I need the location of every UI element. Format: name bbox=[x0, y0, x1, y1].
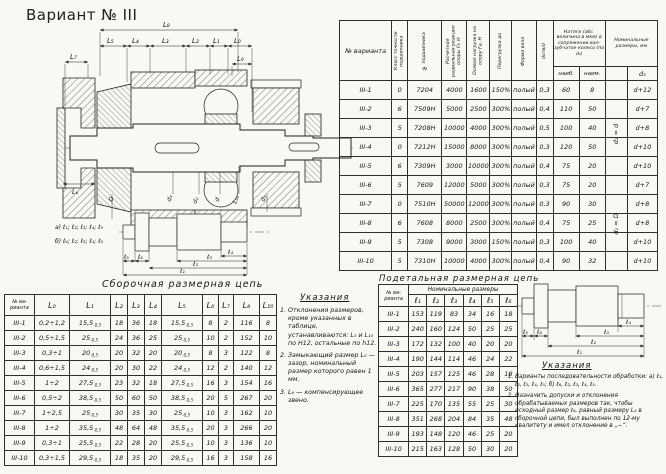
table-cell: III-3 bbox=[5, 346, 35, 361]
table-cell: d+8 bbox=[627, 214, 657, 233]
table-cell: III-4 bbox=[379, 352, 409, 367]
table-cell: 40 bbox=[579, 233, 605, 252]
table-cell: 7204 bbox=[408, 81, 442, 100]
table-cell: 50 bbox=[463, 442, 481, 457]
table-cell: 25 bbox=[481, 322, 499, 337]
table-row: III-100,3÷1,529,5-0,518352029,5-0,516315… bbox=[5, 451, 277, 466]
shaft-step bbox=[534, 284, 548, 328]
machining-sequence-b: б) ℓ₆; ℓ₂; ℓ₃; ℓ₄; ℓ₅ bbox=[55, 238, 104, 245]
table-cell: 217 bbox=[445, 382, 463, 397]
table-row: III-51÷227,5-0,523321827,5-0,516315416 bbox=[5, 376, 277, 391]
subheader-blank bbox=[605, 67, 627, 81]
gear-body-bottom bbox=[253, 172, 299, 208]
table-cell: 0,3 bbox=[536, 138, 553, 157]
table-cell: 140 bbox=[234, 361, 260, 376]
table-cell: 50 bbox=[579, 138, 605, 157]
table-cell: 5 bbox=[392, 176, 408, 195]
table-cell: 30 bbox=[481, 442, 499, 457]
table-cell: 55 bbox=[463, 397, 481, 412]
table-cell: полый bbox=[512, 195, 536, 214]
table-cell: 20-0,5 bbox=[162, 346, 203, 361]
table-cell: 300% bbox=[490, 100, 512, 119]
table-cell: d+10 bbox=[627, 252, 657, 271]
gear-rim-top bbox=[251, 80, 301, 88]
col-header-L2: L₂ bbox=[111, 295, 128, 316]
table-row: III-1057310Н100004000300%полый0,49032d+1… bbox=[340, 252, 658, 271]
table-row: III-9193148120462520 bbox=[379, 427, 518, 442]
table-cell: 100 bbox=[553, 119, 579, 138]
table-cell: 50 bbox=[145, 391, 162, 406]
table-cell: 12000 bbox=[442, 176, 467, 195]
col-header-accuracy-class: Класс точности подшипника bbox=[392, 21, 408, 81]
shaft-step bbox=[522, 298, 534, 314]
table-cell: 120 bbox=[553, 138, 579, 157]
table-cell: 128 bbox=[445, 442, 463, 457]
table-cell: 3 bbox=[219, 376, 234, 391]
table-cell: 300% bbox=[490, 119, 512, 138]
table-cell: 0,4 bbox=[536, 252, 553, 271]
table-cell: 300% bbox=[490, 214, 512, 233]
table-cell: 150% bbox=[490, 81, 512, 100]
table-cell: 15,5-0,5 bbox=[70, 316, 111, 331]
table-cell: 8 bbox=[579, 81, 605, 100]
right-ring-bottom bbox=[305, 160, 321, 182]
dim-label: L₇ bbox=[70, 53, 77, 61]
table-cell: 0,3÷1 bbox=[35, 436, 70, 451]
table-cell: 18 bbox=[145, 376, 162, 391]
gear-body-top bbox=[253, 88, 299, 124]
dim-label: ℓ₂ bbox=[590, 339, 596, 346]
table-cell: 27,5-0,5 bbox=[162, 376, 203, 391]
table-cell: 150% bbox=[490, 233, 512, 252]
table-cell: 16 bbox=[203, 376, 219, 391]
table-cell: 300% bbox=[490, 157, 512, 176]
table-cell bbox=[605, 157, 627, 176]
table-cell: 10 bbox=[203, 436, 219, 451]
table-cell: 30 bbox=[579, 195, 605, 214]
table-cell: III-7 bbox=[5, 406, 35, 421]
table-cell: 90 bbox=[553, 195, 579, 214]
table-cell: 20 bbox=[145, 451, 162, 466]
dim-label: L₈ bbox=[163, 21, 170, 29]
table-cell: 8000 bbox=[442, 214, 467, 233]
table-cell: 10 bbox=[260, 436, 277, 451]
table-cell: 20 bbox=[260, 391, 277, 406]
table-cell: 172 bbox=[409, 337, 427, 352]
table-cell: 136 bbox=[234, 436, 260, 451]
table-row: III-86760880002500300%полый0,47525d+8 bbox=[340, 214, 658, 233]
table-cell: III-9 bbox=[379, 427, 409, 442]
ball-bearing-outer-top bbox=[195, 70, 247, 86]
table-cell: 100 bbox=[553, 233, 579, 252]
table-cell: 64 bbox=[128, 421, 145, 436]
table-cell: 0,2÷1,2 bbox=[35, 316, 70, 331]
table-row: III-95730890003000150%полый0,310040d+10 bbox=[340, 233, 658, 252]
table-cell: III-10 bbox=[340, 252, 392, 271]
table-cell: 20 bbox=[499, 442, 517, 457]
table-row: III-7225170135552530 bbox=[379, 397, 518, 412]
table-cell: 3000 bbox=[442, 157, 467, 176]
table-row: III-407212Н150008000300%полый0,312050d+1… bbox=[340, 138, 658, 157]
table-cell: полый bbox=[512, 100, 536, 119]
notes-left-title: Указания bbox=[300, 293, 379, 303]
table-cell: 20 bbox=[499, 337, 517, 352]
table-cell: 22 bbox=[111, 436, 128, 451]
dim-label: ℓ₂ bbox=[192, 261, 198, 268]
shaft-step bbox=[221, 222, 247, 242]
table-cell: 122 bbox=[234, 346, 260, 361]
table-cell: 268 bbox=[427, 412, 445, 427]
table-cell: 84 bbox=[463, 412, 481, 427]
table-cell: 16 bbox=[481, 307, 499, 322]
table-cell: 0,5÷1,5 bbox=[35, 331, 70, 346]
table-cell: d+7 bbox=[627, 176, 657, 195]
table-cell: 16 bbox=[260, 451, 277, 466]
dim-label: ℓ₅ bbox=[123, 254, 129, 261]
table-cell: 2500 bbox=[467, 100, 490, 119]
table-cell: 20 bbox=[145, 436, 162, 451]
note-item: Варианты последовательности обработки: а… bbox=[515, 374, 664, 389]
table-row: III-71÷2,525-0,530353025-0,510316210 bbox=[5, 406, 277, 421]
table-cell: 29,5-0,5 bbox=[70, 451, 111, 466]
table-cell bbox=[605, 100, 627, 119]
col-header-shaft-form: Форма вала bbox=[512, 21, 536, 81]
dim-label: ℓ₆ bbox=[536, 329, 542, 336]
table-cell: 277 bbox=[427, 382, 445, 397]
table-row: III-4190144114462422 bbox=[379, 352, 518, 367]
table-cell: 152 bbox=[234, 331, 260, 346]
table-cell: 22 bbox=[145, 361, 162, 376]
dim-label: ℓ₁ bbox=[179, 268, 185, 275]
table-cell: 40 bbox=[579, 119, 605, 138]
table-cell: 0 bbox=[392, 138, 408, 157]
col-header-variant: № варианта bbox=[340, 21, 392, 81]
table-cell: 365 bbox=[409, 382, 427, 397]
table-cell: 32 bbox=[128, 376, 145, 391]
table-cell: 215 bbox=[409, 442, 427, 457]
dim-label: L₃ bbox=[162, 37, 169, 45]
table-cell: III-5 bbox=[5, 376, 35, 391]
table-row: III-357208Н100004000300%полый0,510040d+8 bbox=[340, 119, 658, 138]
table-cell: III-4 bbox=[340, 138, 392, 157]
table-cell: 4000 bbox=[467, 119, 490, 138]
bearing-assembly-drawing: L₈ L₅ L₄ L₃ L₂ L₁ L₀ L₇ L₉ L₆ D d₃ d₂ d … bbox=[55, 16, 355, 278]
table-cell: 203 bbox=[409, 367, 427, 382]
table-cell: 35,5-0,5 bbox=[70, 421, 111, 436]
table-cell: 20 bbox=[111, 346, 128, 361]
table-cell: 351 bbox=[409, 412, 427, 427]
col-header-radial-reaction: Расчетная радиальная реакция опоры Fr, Н bbox=[442, 21, 467, 81]
table-cell: 25 bbox=[499, 322, 517, 337]
table-cell: III-8 bbox=[5, 421, 35, 436]
table-row: III-657609120005000300%полый0,37520d+7 bbox=[340, 176, 658, 195]
table-cell: 60 bbox=[128, 391, 145, 406]
table-cell: 9000 bbox=[442, 233, 467, 252]
table-cell: III-3 bbox=[340, 119, 392, 138]
table-cell: d+10 bbox=[627, 233, 657, 252]
table-cell: 27,5-0,5 bbox=[70, 376, 111, 391]
table-cell: III-2 bbox=[340, 100, 392, 119]
table-cell: 8 bbox=[203, 346, 219, 361]
table-cell: III-3 bbox=[379, 337, 409, 352]
table-cell: 12000 bbox=[467, 195, 490, 214]
table-cell: 18 bbox=[111, 316, 128, 331]
table-cell: 0,5÷2 bbox=[35, 391, 70, 406]
table-cell: III-8 bbox=[340, 214, 392, 233]
col-header-el1: ℓ₁ bbox=[409, 295, 427, 307]
table-row: III-3172132100402020 bbox=[379, 337, 518, 352]
table-cell: 3 bbox=[219, 421, 234, 436]
table-cell: 3 bbox=[219, 451, 234, 466]
table-cell: 0,6÷1,5 bbox=[35, 361, 70, 376]
col-header-L10: L₁₀ bbox=[260, 295, 277, 316]
table-cell: 25 bbox=[481, 427, 499, 442]
table-cell: 162 bbox=[234, 406, 260, 421]
table-cell: 20 bbox=[579, 176, 605, 195]
table-cell: 35 bbox=[128, 451, 145, 466]
table-cell: 30 bbox=[145, 406, 162, 421]
note-d1-equals-D: d₁ = D bbox=[612, 209, 620, 239]
table-cell: 30 bbox=[128, 361, 145, 376]
table-cell: 50 bbox=[111, 391, 128, 406]
table-cell: 18 bbox=[499, 307, 517, 322]
col-header-L5: L₅ bbox=[162, 295, 203, 316]
table-cell: 114 bbox=[445, 352, 463, 367]
dim-label: d₃ bbox=[165, 194, 174, 203]
notes-left: Указания Отклонения размеров, кроме указ… bbox=[279, 293, 379, 409]
table-cell: 90 bbox=[463, 382, 481, 397]
table-cell: 266 bbox=[234, 421, 260, 436]
table-cell: 20 bbox=[579, 157, 605, 176]
table-cell: 5 bbox=[219, 391, 234, 406]
housing-top bbox=[131, 72, 195, 88]
table-cell: III-2 bbox=[379, 322, 409, 337]
table-cell: 20 bbox=[481, 337, 499, 352]
left-flange bbox=[57, 108, 65, 188]
table-cell: 30 bbox=[111, 406, 128, 421]
table-cell: 163 bbox=[427, 442, 445, 457]
table-cell: 190 bbox=[409, 352, 427, 367]
table-cell: 0,5 bbox=[536, 119, 553, 138]
table-cell: 25 bbox=[481, 397, 499, 412]
table-cell: 24-0,5 bbox=[162, 361, 203, 376]
table-cell: 7308 bbox=[408, 233, 442, 252]
col-header-variant: № ва-рианта bbox=[5, 295, 35, 316]
assembly-chain-table: № ва-рианта L₀ L₁ L₂ L₃ L₄ L₅ L₆ L₇ L₈ L… bbox=[4, 294, 277, 466]
shaft-step bbox=[123, 225, 135, 239]
left-cap-bottom bbox=[63, 168, 95, 218]
table-cell: 157 bbox=[427, 367, 445, 382]
dim-label: ℓ₃ bbox=[206, 254, 212, 261]
table-cell: 300% bbox=[490, 176, 512, 195]
table-cell: 18 bbox=[111, 451, 128, 466]
table-cell: 34 bbox=[463, 307, 481, 322]
table-cell: 38,5-0,5 bbox=[162, 391, 203, 406]
col-header-L6: L₆ bbox=[203, 295, 219, 316]
table-cell: полый bbox=[512, 119, 536, 138]
table-cell: 4000 bbox=[467, 252, 490, 271]
table-cell: полый bbox=[512, 252, 536, 271]
table-cell: 10 bbox=[203, 406, 219, 421]
table-cell: 36 bbox=[128, 331, 145, 346]
table-cell: 35 bbox=[481, 412, 499, 427]
table-cell: d+7 bbox=[627, 100, 657, 119]
note-item: Отклонения размеров, кроме указанных в т… bbox=[288, 307, 379, 348]
table-cell: 90 bbox=[553, 252, 579, 271]
note-d2-equals-d: d₂ = d bbox=[612, 119, 620, 149]
table-cell: 0,4 bbox=[536, 157, 553, 176]
col-header-L8: L₈ bbox=[234, 295, 260, 316]
table-cell: 16 bbox=[203, 451, 219, 466]
shaft-step bbox=[548, 290, 576, 322]
table-cell: 154 bbox=[234, 376, 260, 391]
table-cell: полый bbox=[512, 233, 536, 252]
table-cell: 2 bbox=[219, 316, 234, 331]
table-cell: 6 bbox=[392, 157, 408, 176]
table-cell: 25-0,5 bbox=[70, 331, 111, 346]
notes-right-title: Указания bbox=[542, 361, 664, 371]
table-cell: 5000 bbox=[467, 176, 490, 195]
table-cell: 5 bbox=[392, 233, 408, 252]
table-cell: 10 bbox=[260, 406, 277, 421]
table-cell: 25-0,5 bbox=[70, 406, 111, 421]
table-cell: 8 bbox=[203, 316, 219, 331]
table-cell: 7309Н bbox=[408, 157, 442, 176]
col-header-L7: L₇ bbox=[219, 295, 234, 316]
table-row: III-5203157125462818 bbox=[379, 367, 518, 382]
table-cell: 10 bbox=[203, 331, 219, 346]
table-cell: 0,3÷1 bbox=[35, 346, 70, 361]
table-cell: III-7 bbox=[379, 397, 409, 412]
table-cell: 20 bbox=[203, 391, 219, 406]
table-row: III-267509Н50002500300%полый0,411050d+7 bbox=[340, 100, 658, 119]
shaft-step bbox=[576, 286, 618, 326]
table-cell: 119 bbox=[427, 307, 445, 322]
table-cell: 300% bbox=[490, 138, 512, 157]
notes-right: Указания Варианты последовательности обр… bbox=[506, 361, 664, 435]
machining-sequence-a: а) ℓ₁; ℓ₂; ℓ₃; ℓ₄; ℓ₅ bbox=[55, 224, 104, 231]
note-item: L₉ — компенсирующее звено. bbox=[288, 389, 379, 405]
table-cell: 193 bbox=[409, 427, 427, 442]
subheader-max: наиб. bbox=[553, 67, 579, 81]
table-cell: 125 bbox=[445, 367, 463, 382]
dim-label: ℓ₄ bbox=[227, 249, 233, 256]
col-header-bearing-no: № подшипника bbox=[408, 21, 442, 81]
table-cell: 25 bbox=[145, 331, 162, 346]
table-cell: 5000 bbox=[442, 100, 467, 119]
table-cell: 124 bbox=[445, 322, 463, 337]
left-bearing-bottom bbox=[97, 168, 131, 212]
table-cell: 3 bbox=[219, 346, 234, 361]
table-cell: 38,5-0,5 bbox=[70, 391, 111, 406]
table-cell: 240 bbox=[409, 322, 427, 337]
scanned-sheet: Вариант № III bbox=[0, 0, 666, 474]
table-cell: 7609 bbox=[408, 176, 442, 195]
table-cell: 2 bbox=[219, 331, 234, 346]
table-cell: 46 bbox=[463, 427, 481, 442]
inner-race-top bbox=[205, 114, 237, 124]
table-row: III-10,2÷1,215,5-0,518361815,5-0,5821168 bbox=[5, 316, 277, 331]
table-cell: 10000 bbox=[442, 252, 467, 271]
table-cell: 1÷2 bbox=[35, 421, 70, 436]
table-cell: 50000 bbox=[442, 195, 467, 214]
table-cell: 7608 bbox=[408, 214, 442, 233]
dim-label: ℓ₁ bbox=[576, 349, 582, 356]
table-cell: d+12 bbox=[627, 81, 657, 100]
col-header-L3: L₃ bbox=[128, 295, 145, 316]
keyway-right bbox=[289, 143, 319, 151]
table-cell: 35 bbox=[128, 406, 145, 421]
table-cell: III-8 bbox=[379, 412, 409, 427]
table-cell: 0,3 bbox=[536, 176, 553, 195]
table-cell: 0,4 bbox=[536, 100, 553, 119]
table-cell: 75 bbox=[553, 157, 579, 176]
table-row: III-707510Н5000012000300%полый0,39030d+8 bbox=[340, 195, 658, 214]
dim-label: L₅ bbox=[107, 37, 114, 45]
table-cell: 25 bbox=[579, 214, 605, 233]
table-cell: 15,5-0,5 bbox=[162, 316, 203, 331]
table-cell: 75 bbox=[553, 176, 579, 195]
table-cell: 25-0,5 bbox=[162, 331, 203, 346]
table-cell: 20 bbox=[111, 361, 128, 376]
keyway-left bbox=[155, 143, 199, 153]
col-header-dotv-d: dотв/d bbox=[536, 21, 553, 81]
table-cell: 60 bbox=[553, 81, 579, 100]
table-cell: 36 bbox=[128, 316, 145, 331]
col-header-el6: ℓ₆ bbox=[499, 295, 517, 307]
table-cell: 158 bbox=[234, 451, 260, 466]
table-row: III-115311983341618 bbox=[379, 307, 518, 322]
table-cell: 8000 bbox=[467, 138, 490, 157]
table-cell: 83 bbox=[445, 307, 463, 322]
col-header-variant: № ва-рианта bbox=[379, 285, 409, 307]
table-cell: 7509Н bbox=[408, 100, 442, 119]
table-cell: 2500 bbox=[467, 214, 490, 233]
table-cell: 100 bbox=[445, 337, 463, 352]
table-cell: 20 bbox=[260, 421, 277, 436]
table-cell: 225 bbox=[409, 397, 427, 412]
table-cell: III-2 bbox=[5, 331, 35, 346]
dim-label: d₂ bbox=[191, 196, 200, 205]
col-header-el3: ℓ₃ bbox=[445, 295, 463, 307]
col-header-L1: L₁ bbox=[70, 295, 111, 316]
table-cell: 15000 bbox=[442, 138, 467, 157]
table-cell: 8 bbox=[260, 316, 277, 331]
assembly-chain-title: Сборочная размерная цепь bbox=[102, 279, 263, 290]
table-cell: 1600 bbox=[467, 81, 490, 100]
table-cell: 160 bbox=[427, 322, 445, 337]
table-cell: III-9 bbox=[5, 436, 35, 451]
table-cell: 3 bbox=[219, 436, 234, 451]
table-cell: 46 bbox=[463, 367, 481, 382]
table-cell: 5 bbox=[392, 119, 408, 138]
col-header-L4: L₄ bbox=[145, 295, 162, 316]
table-cell: полый bbox=[512, 138, 536, 157]
table-row: III-10720440001600150%полый0,3608d+12 bbox=[340, 81, 658, 100]
table-cell: 0,3 bbox=[536, 233, 553, 252]
table-cell: 6 bbox=[392, 100, 408, 119]
table-cell: полый bbox=[512, 214, 536, 233]
dim-label: L₆ bbox=[72, 188, 79, 196]
gear-rim-bottom bbox=[251, 208, 301, 216]
table-cell: 7310Н bbox=[408, 252, 442, 271]
col-header-L0: L₀ bbox=[35, 295, 70, 316]
table-cell: 132 bbox=[427, 337, 445, 352]
table-cell: 0 bbox=[392, 195, 408, 214]
shaft-step bbox=[177, 214, 221, 250]
table-cell: 20-0,5 bbox=[70, 346, 111, 361]
table-cell: 1÷2 bbox=[35, 376, 70, 391]
